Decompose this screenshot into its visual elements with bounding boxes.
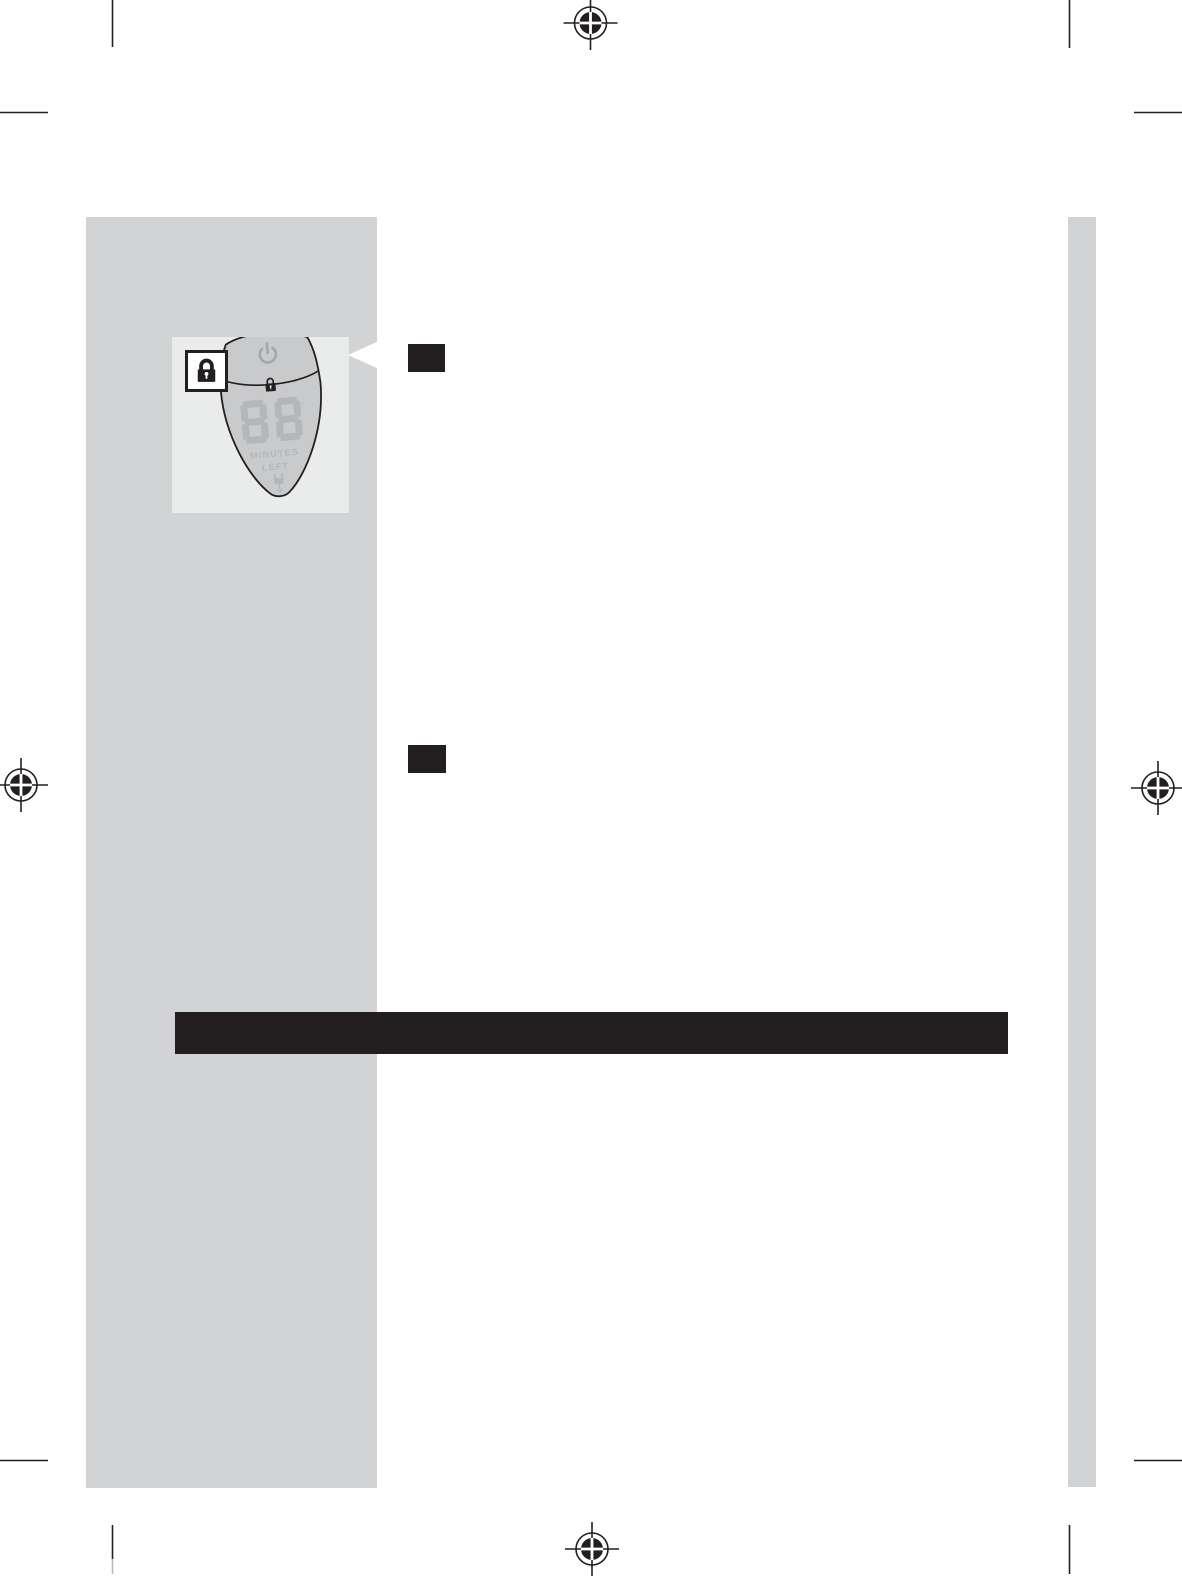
step-number-square-1	[408, 344, 445, 372]
travel-lock-callout-icon	[191, 356, 222, 386]
illustration-panel: 88	[172, 337, 349, 513]
step-number-square-2	[408, 745, 446, 773]
right-gray-strip	[1068, 217, 1096, 1487]
shaver-handle: MINUTES LEFT	[216, 337, 330, 501]
callout-arrow	[347, 341, 379, 369]
manual-page: 88	[0, 0, 1182, 1576]
section-header-bar	[175, 1012, 1008, 1054]
registration-target-right-middle	[1131, 761, 1182, 815]
travel-lock-callout	[185, 350, 228, 392]
registration-target-left-middle	[0, 758, 48, 812]
registration-target-bottom-center	[565, 1522, 619, 1576]
registration-target-top-center	[564, 0, 618, 50]
